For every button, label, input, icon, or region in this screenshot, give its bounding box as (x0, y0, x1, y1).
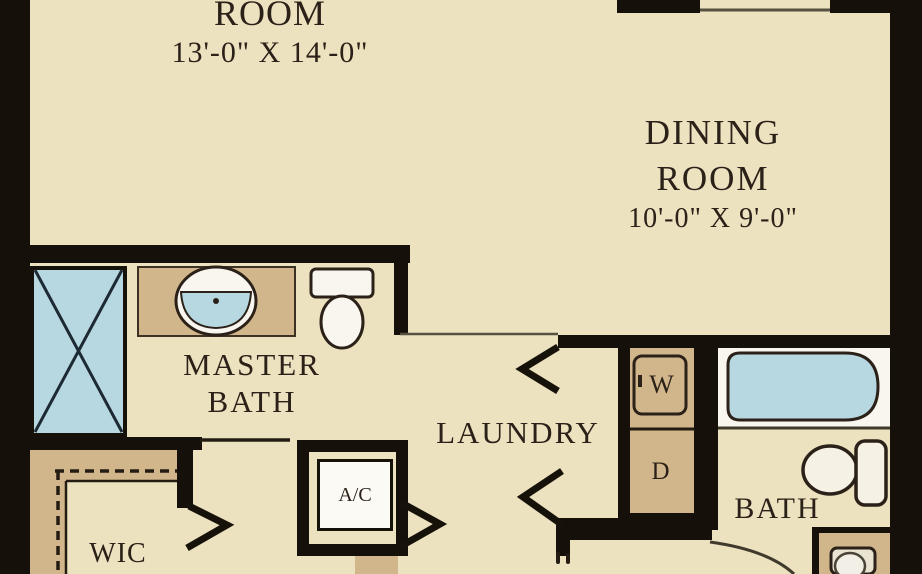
ac-closet-bottom-stub (355, 556, 398, 574)
master-bath-toilet (311, 269, 373, 348)
master-vanity-counter (137, 266, 296, 337)
wall-wic-right (177, 443, 193, 508)
room-dimensions: 13'-0" X 14'-0" (120, 36, 420, 69)
bath-door-arc (710, 542, 794, 574)
ac-unit: A/C (317, 459, 393, 531)
wall-master-bath-top (0, 245, 410, 263)
washer-label: W (640, 371, 684, 400)
door-swing-wic (187, 506, 227, 548)
tub-alcove (718, 347, 890, 428)
wall-wd-bottom (618, 513, 718, 530)
room-label: ROOM (140, 0, 400, 34)
room-name: ROOM (214, 0, 326, 33)
wic-label: WIC (79, 539, 157, 570)
wall-dining-laundry (558, 335, 892, 348)
wall-wd-right (694, 335, 718, 530)
wall-right (890, 0, 922, 574)
ac-label: A/C (338, 484, 371, 506)
wall-top-stub-right (830, 0, 895, 13)
laundry-label: LAUNDRY (413, 416, 623, 450)
wall-left (0, 0, 30, 574)
wall-laundry-bottom-stub (556, 540, 570, 556)
door-swing-laundry-top (522, 347, 558, 391)
wall-top-stub-left (617, 0, 700, 13)
floor-plan: A/C (0, 0, 922, 574)
bath-vanity-counter (812, 527, 890, 574)
shower-stall (30, 266, 127, 437)
dining-room-dimensions: 10'-0" X 9'-0" (578, 204, 848, 235)
bath-label: BATH (720, 492, 835, 525)
dining-room-label: DINING ROOM (588, 110, 838, 202)
master-bath-label: MASTER BATH (158, 346, 346, 420)
ac-closet: A/C (297, 440, 408, 556)
dryer-label: D (636, 458, 686, 486)
wall-master-bath-right (394, 245, 408, 335)
